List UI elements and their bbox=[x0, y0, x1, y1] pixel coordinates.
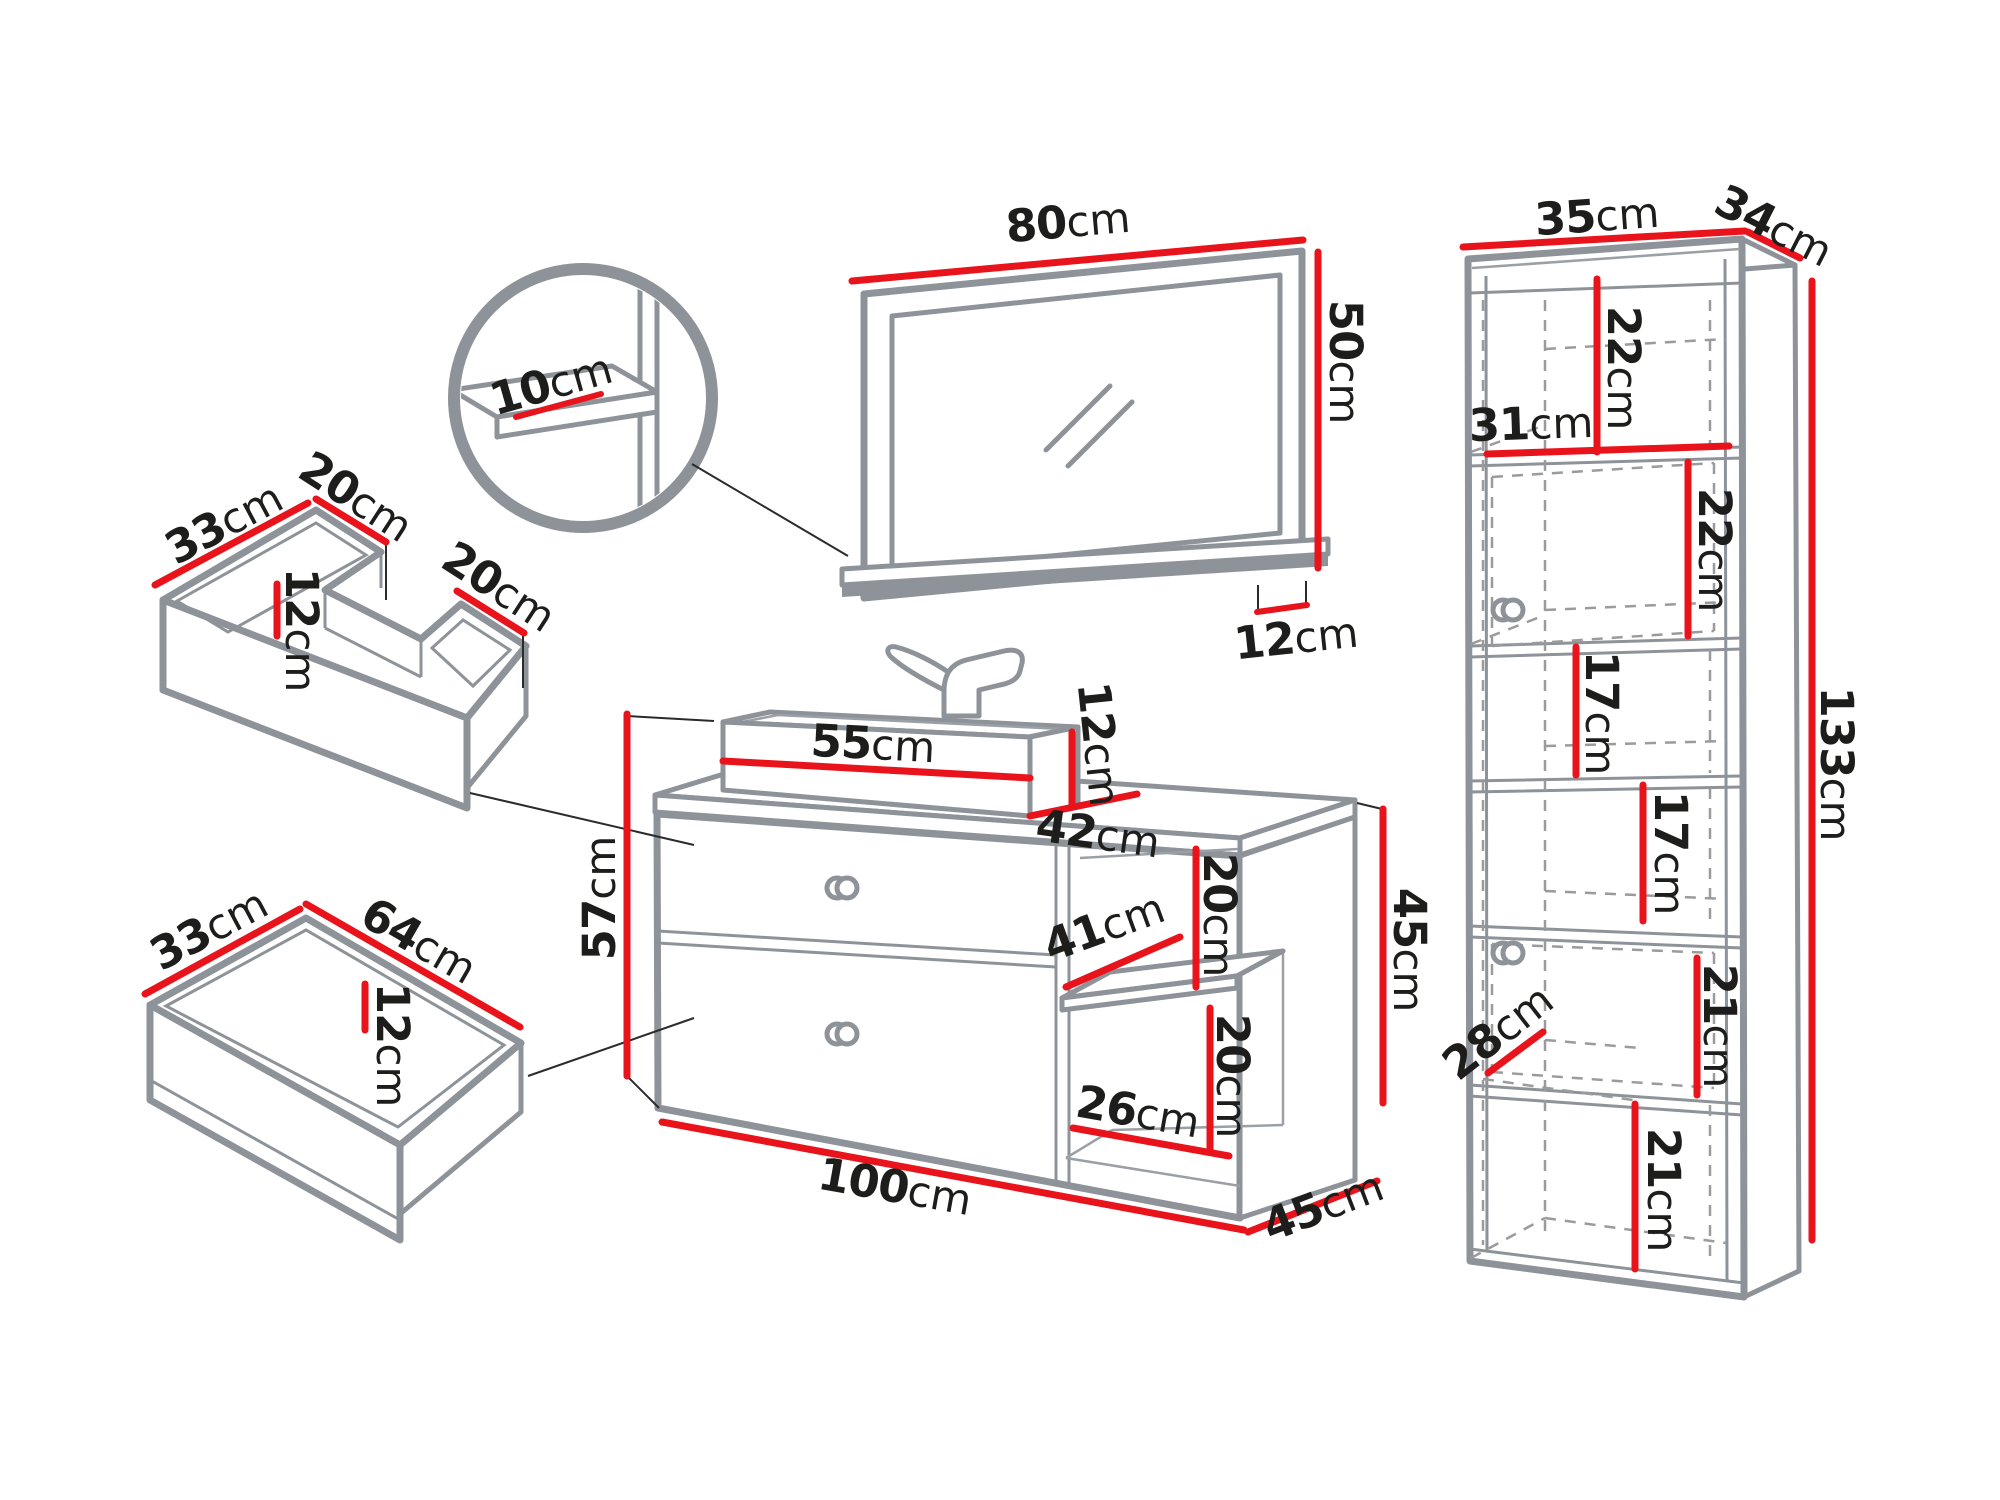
dim-mirror-shelf-depth: 12cm bbox=[1231, 605, 1360, 671]
dim-open-upper-height: 20cm bbox=[1193, 853, 1246, 978]
faucet-icon bbox=[888, 647, 1023, 716]
dim-cabinet-height: 133cm bbox=[1810, 687, 1863, 842]
dim-lower-drawer-height: 12cm bbox=[366, 983, 419, 1108]
dim-cabinet-niche2: 17cm bbox=[1575, 651, 1628, 776]
dim-mirror-height: 50cm bbox=[1319, 300, 1372, 425]
dim-mirror-width: 80cm bbox=[1004, 190, 1133, 254]
mirror-glass bbox=[892, 275, 1280, 572]
dim-cabinet-inner-width: 31cm bbox=[1468, 395, 1594, 452]
dim-cabinet-niche3: 17cm bbox=[1644, 791, 1697, 916]
dim-cabinet-top-width: 35cm bbox=[1533, 185, 1661, 247]
dim-cabinet-door2: 21cm bbox=[1693, 964, 1746, 1089]
dim-cabinet-niche1: 22cm bbox=[1597, 306, 1650, 431]
dim-open-lower-height: 20cm bbox=[1206, 1014, 1259, 1139]
dim-cabinet-niche4: 21cm bbox=[1637, 1128, 1690, 1253]
vanity-front bbox=[657, 814, 1240, 1218]
dim-vanity-front-height: 57cm bbox=[573, 836, 626, 961]
bathroom-furniture-dimension-diagram: 80cm 50cm 12cm 10cm 35cm 34cm 22cm 31cm … bbox=[0, 0, 2000, 1500]
dim-open-section-height: 45cm bbox=[1383, 888, 1436, 1013]
diagram-canvas: 80cm 50cm 12cm 10cm 35cm 34cm 22cm 31cm … bbox=[0, 0, 2000, 1500]
dim-cabinet-door1: 22cm bbox=[1688, 488, 1741, 613]
tall-cabinet-side bbox=[1742, 239, 1799, 1297]
mirror bbox=[842, 251, 1328, 612]
dim-basin-width: 55cm bbox=[809, 714, 936, 773]
dim-sink-drawer-height: 12cm bbox=[275, 568, 328, 693]
